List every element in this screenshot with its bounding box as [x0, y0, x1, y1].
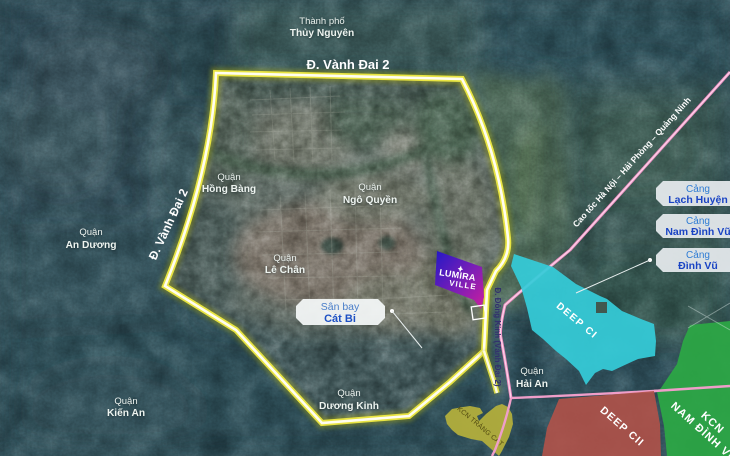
svg-text:Quận: Quận — [273, 253, 296, 264]
svg-text:Quận: Quận — [337, 388, 360, 399]
svg-text:Lạch Huyện: Lạch Huyện — [668, 194, 728, 206]
svg-text:Lê Chân: Lê Chân — [265, 265, 305, 276]
svg-text:Cát Bi: Cát Bi — [324, 313, 356, 325]
svg-text:Dương Kinh: Dương Kinh — [319, 401, 379, 412]
svg-text:Đ. Vành Đai 2: Đ. Vành Đai 2 — [306, 57, 389, 72]
svg-text:Quận: Quận — [217, 172, 240, 183]
svg-text:Ngô Quyền: Ngô Quyền — [343, 194, 397, 206]
svg-text:Hồng Bàng: Hồng Bàng — [202, 183, 256, 195]
svg-text:An Dương: An Dương — [66, 240, 117, 251]
svg-text:Quận: Quận — [114, 396, 137, 407]
svg-text:Sân bay: Sân bay — [321, 301, 360, 313]
svg-text:Nam Đình Vũ: Nam Đình Vũ — [665, 226, 730, 238]
svg-text:Hải An: Hải An — [516, 379, 548, 390]
svg-text:Thủy Nguyên: Thủy Nguyên — [290, 28, 355, 39]
svg-text:Quận: Quận — [358, 182, 381, 193]
svg-text:Quận: Quận — [79, 227, 102, 238]
svg-text:Quận: Quận — [520, 366, 543, 377]
svg-text:Kiến An: Kiến An — [107, 407, 145, 419]
svg-text:Thành phố: Thành phố — [299, 16, 345, 27]
svg-text:Đ. Đông Kinh (Vành Đai 2): Đ. Đông Kinh (Vành Đai 2) — [493, 287, 502, 386]
svg-text:Đình Vũ: Đình Vũ — [678, 260, 718, 272]
